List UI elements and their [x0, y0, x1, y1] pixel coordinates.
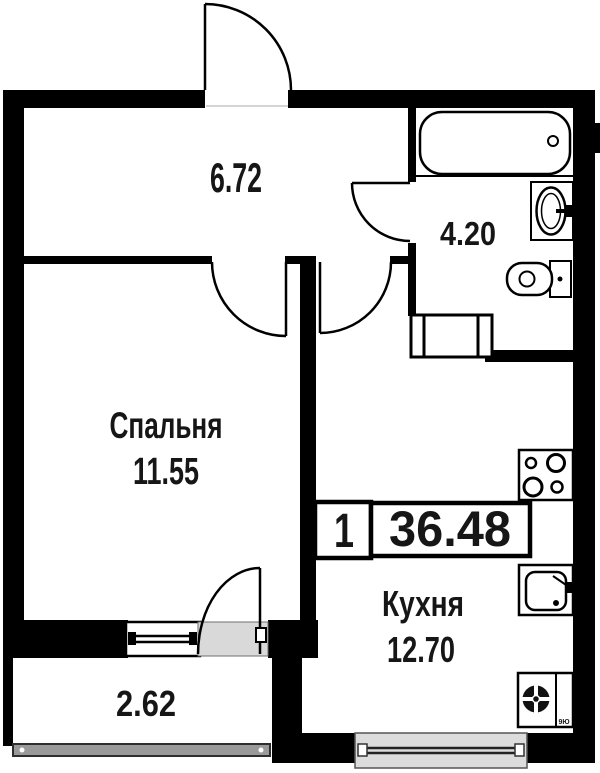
bathroom-sink-icon	[531, 182, 577, 240]
rooms-count-label: 1	[334, 505, 354, 558]
entrance-door	[205, 4, 291, 90]
total-area-label: 36.48	[389, 501, 511, 557]
vent-shaft-label: 9Ю	[558, 719, 569, 726]
wall-hallway-bedroom	[24, 256, 212, 264]
wall-left	[3, 90, 24, 658]
wall-bathroom-bottom	[485, 350, 573, 362]
bedroom-window	[126, 622, 200, 656]
bedroom-name-label: Спальня	[110, 405, 223, 446]
bedroom-area-label: 11.55	[133, 451, 199, 493]
bathroom-area-label: 4.20	[440, 215, 496, 252]
kitchen-sink-icon	[519, 565, 576, 615]
vent-shaft-icon: 9Ю	[518, 673, 573, 727]
floor-plan: 9Ю 1 36.48 6.72 4.20 Спальня 11.55 Кухня…	[0, 0, 600, 773]
wall-bathroom-left-upper	[408, 108, 416, 182]
interior-walls	[24, 108, 573, 658]
bathtub-icon	[416, 112, 573, 176]
wall-top-left	[3, 90, 205, 108]
wall-kitchen-bottom-left	[272, 733, 355, 763]
kitchen-area-label: 12.70	[387, 629, 455, 670]
kitchen-window	[355, 733, 527, 768]
bathroom-door	[352, 183, 410, 241]
balcony-door-hinge	[256, 628, 266, 642]
wall-bathroom-left-lower	[408, 243, 416, 316]
kitchen-name-label: Кухня	[382, 583, 464, 624]
wall-kitchen-bottom-right	[527, 733, 595, 763]
kitchen-door	[320, 262, 391, 333]
wall-right	[573, 90, 595, 763]
bedroom-door	[212, 262, 286, 336]
wall-right-stub	[593, 123, 600, 153]
wall-bedroom-bottom-left	[3, 620, 128, 658]
total-area-badge: 1 36.48	[315, 501, 530, 558]
stove-icon	[519, 450, 573, 500]
wall-bedroom-kitchen	[300, 256, 316, 658]
floor-plan-canvas: 9Ю 1 36.48 6.72 4.20 Спальня 11.55 Кухня…	[0, 0, 600, 773]
washing-machine-icon	[411, 315, 492, 357]
hallway-area-label: 6.72	[210, 154, 262, 201]
toilet-icon	[507, 261, 571, 297]
balcony-glazing	[13, 744, 270, 756]
kitchen-fixtures: 9Ю	[518, 450, 576, 727]
balcony-area-label: 2.62	[116, 683, 176, 724]
wall-top-right	[288, 90, 595, 108]
wall-balcony-left	[3, 658, 13, 746]
